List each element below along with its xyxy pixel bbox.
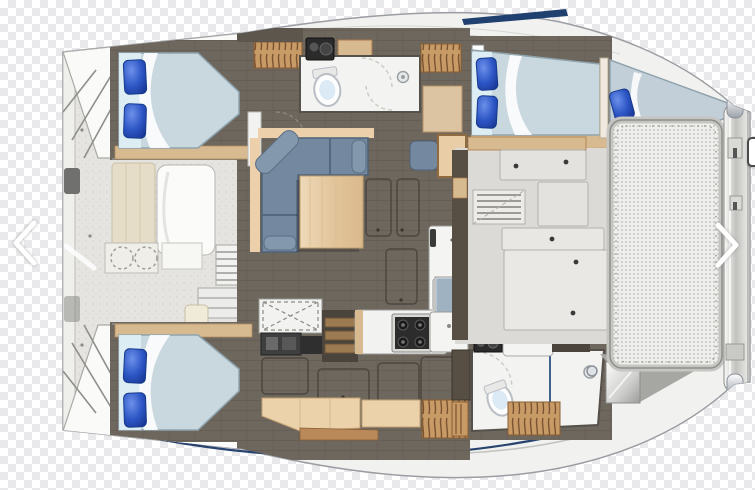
- pillow: [123, 59, 147, 94]
- pillow: [123, 393, 146, 428]
- chevron-right-icon: [714, 221, 742, 269]
- pillow: [123, 104, 146, 139]
- carousel-previous-button[interactable]: [2, 213, 46, 273]
- carousel-stage: Top-down floor plan drawing of a catamar…: [0, 0, 755, 490]
- floorplan-image: Top-down floor plan drawing of a catamar…: [0, 0, 755, 490]
- salon-table: [300, 176, 363, 248]
- hanging-locker: [508, 402, 560, 435]
- hanging-locker: [254, 42, 302, 68]
- edge-cutoff-box[interactable]: [747, 137, 755, 167]
- windlass: [587, 366, 597, 376]
- pillow: [123, 348, 147, 383]
- anchor-roller: [727, 374, 743, 396]
- pillow: [476, 95, 498, 128]
- grab-handle: [64, 168, 80, 194]
- port-forward-cabin: Port forward cabin with double berth: [471, 50, 609, 150]
- starboard-head: Starboard forward head with toilet, vani…: [452, 330, 604, 436]
- hanging-locker: [421, 44, 461, 72]
- carousel-next-button[interactable]: [706, 215, 750, 275]
- ottoman: [410, 141, 438, 170]
- chevron-left-icon: [10, 219, 38, 267]
- anchor-roller: [727, 96, 743, 118]
- gas-cooktop: [392, 314, 432, 352]
- pillow: [476, 57, 498, 90]
- forward-cockpit: Forward cockpit with lockers and bench s…: [452, 137, 616, 344]
